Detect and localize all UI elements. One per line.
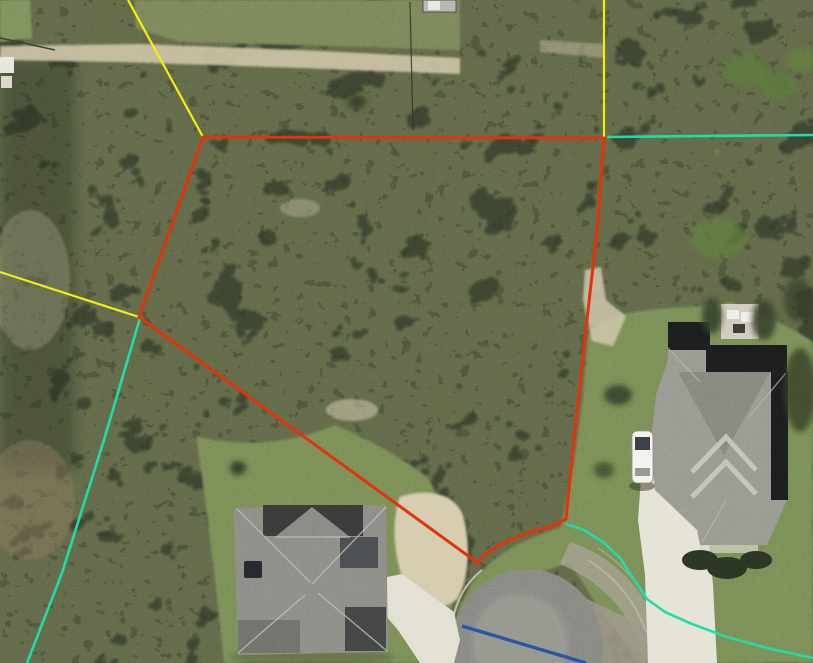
photo-grain xyxy=(0,0,813,663)
aerial-photo xyxy=(0,0,813,663)
aerial-map-view[interactable] xyxy=(0,0,813,663)
